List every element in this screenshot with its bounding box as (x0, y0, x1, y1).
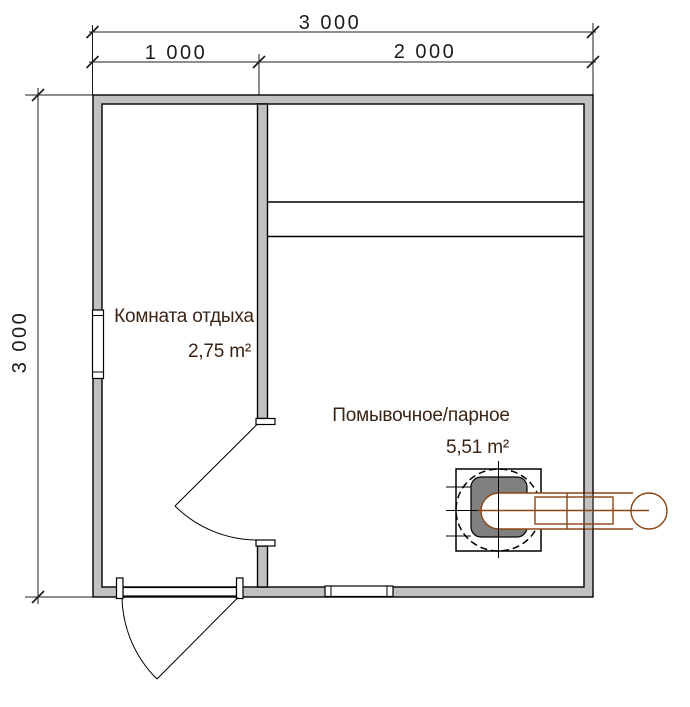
door-swing-arc (122, 598, 157, 679)
top-dimension-group: 3 000 1 000 2 000 (87, 12, 600, 96)
bottom-window (325, 586, 393, 597)
room-area: 5,51 m² (446, 437, 509, 458)
floor-plan-page: 3 000 1 000 2 000 3 000 (0, 0, 690, 707)
room-name: Комната отдыха (114, 306, 254, 327)
door-jamb (256, 419, 275, 425)
entrance-door (117, 578, 244, 679)
door-leaf (157, 598, 238, 680)
dimension-label-total-width: 3 000 (299, 12, 362, 34)
door-opening (123, 588, 237, 597)
room-area: 2,75 m² (188, 341, 251, 362)
partition-wall-upper (258, 104, 268, 419)
left-window (93, 310, 104, 379)
door-jamb (256, 540, 275, 546)
dimension-label-left-segment: 1 000 (145, 42, 208, 64)
door-jamb (117, 578, 124, 599)
partition-wall-lower (258, 546, 268, 587)
room-name: Помывочное/парное (332, 405, 509, 426)
door-jamb (237, 578, 244, 599)
window-symbol (325, 586, 393, 597)
window-symbol (93, 310, 104, 379)
dimension-label-right-segment: 2 000 (394, 41, 457, 63)
dimension-label-total-height: 3 000 (9, 311, 31, 374)
left-dimension-group: 3 000 (9, 88, 93, 604)
floor-plan-canvas: 3 000 1 000 2 000 3 000 (0, 0, 690, 707)
